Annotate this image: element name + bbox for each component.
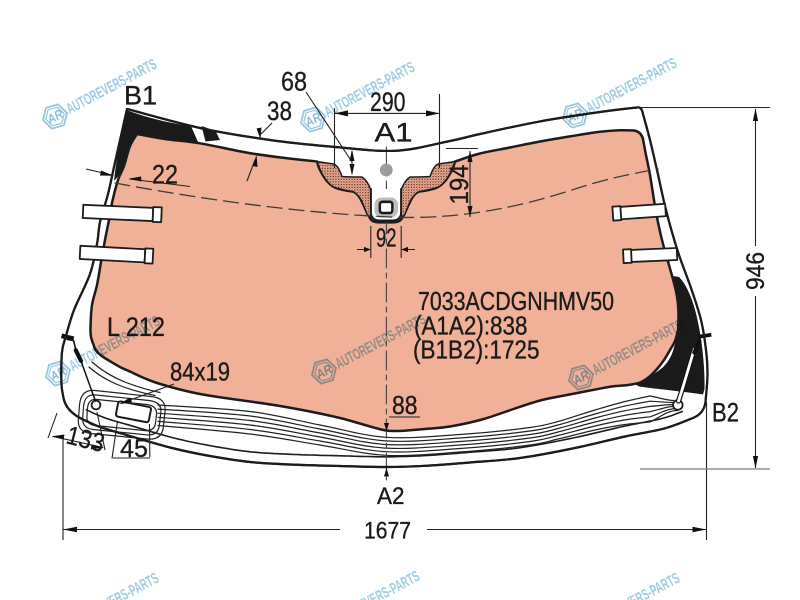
svg-text:194: 194 — [446, 165, 474, 205]
svg-text:A1: A1 — [375, 118, 413, 148]
svg-text:(B1B2):1725: (B1B2):1725 — [413, 337, 540, 365]
svg-text:A2: A2 — [377, 483, 405, 510]
svg-text:946: 946 — [742, 252, 770, 290]
svg-text:38: 38 — [267, 96, 292, 126]
svg-text:92: 92 — [376, 223, 397, 253]
svg-text:1677: 1677 — [364, 518, 411, 545]
svg-text:88: 88 — [392, 390, 418, 420]
svg-text:68: 68 — [281, 67, 307, 97]
svg-text:B2: B2 — [712, 398, 739, 428]
svg-text:84x19: 84x19 — [170, 357, 230, 387]
svg-text:45: 45 — [120, 435, 148, 463]
svg-text:22: 22 — [152, 160, 178, 190]
